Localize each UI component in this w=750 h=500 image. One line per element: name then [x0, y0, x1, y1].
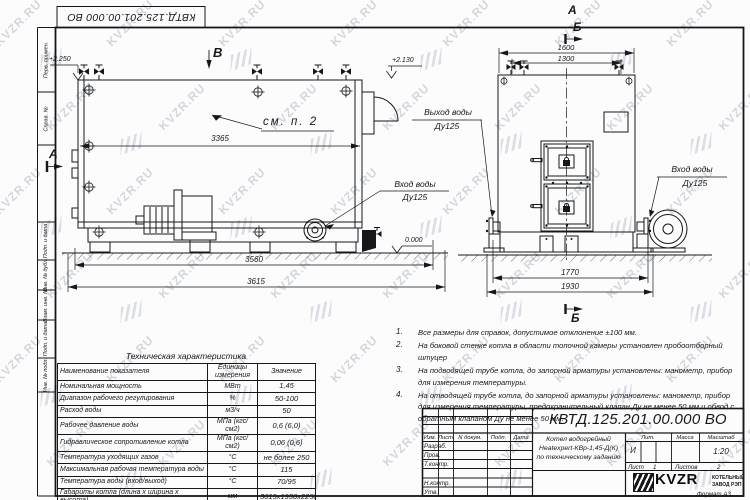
- spec-cell: Габариты котла (длина х ширина х высота): [58, 489, 208, 500]
- margin-box-inv-podl: Инв. № подл.: [37, 358, 55, 392]
- spec-cell: 1,45: [258, 381, 316, 393]
- section-a-label: А: [49, 148, 58, 161]
- spec-cell: 50: [258, 405, 316, 417]
- spec-cell: Номинальная мощность: [58, 381, 208, 393]
- spec-col-units: Единицы измерения: [208, 364, 258, 381]
- spec-cell: °С: [208, 464, 258, 476]
- spec-cell: Максимальная рабочая температура воды: [58, 464, 208, 476]
- tb-row-prov: Пров.: [424, 452, 440, 459]
- level-2250-label: +2.250: [49, 56, 71, 64]
- doc-number-inverted: КВТД.125.201.00.000 ВО: [67, 11, 196, 23]
- spec-row: Температура воды (вход/выход)°С70/95: [58, 476, 316, 488]
- dim-1300-label: 1300: [546, 55, 586, 63]
- dim-3365-label: 3365: [198, 135, 242, 144]
- water-outlet-dn: Ду125: [424, 122, 470, 132]
- spec-cell: 50-100: [258, 393, 316, 405]
- note-number: 2.: [396, 340, 418, 363]
- spec-row: Рабочее давление водыМПа (кгс/см2)0,6 (6…: [58, 417, 316, 434]
- spec-cell: Температура воды (вход/выход): [58, 476, 208, 488]
- note-text: На подводящей трубе котла, до запорной а…: [418, 365, 742, 388]
- spec-header-row: Наименование показателя Единицы измерени…: [58, 364, 316, 381]
- level-2130-label: +2.130: [392, 57, 414, 65]
- water-inlet-front-dn: Ду125: [672, 179, 718, 189]
- dim-1930-label: 1930: [550, 283, 590, 292]
- see-note-label: см. п. 2: [263, 116, 318, 129]
- kvzr-logo-text: KVZR: [655, 471, 698, 488]
- spec-cell: 70/95: [258, 476, 316, 488]
- margin-box-podp-data-1: Подп. и дата: [37, 222, 55, 260]
- note-number: 1.: [396, 327, 418, 338]
- spec-cell: м3/ч: [208, 405, 258, 417]
- spec-row: Габариты котла (длина х ширина х высота)…: [58, 489, 316, 500]
- dim-3560-label: 3560: [232, 256, 276, 265]
- spec-cell: Гидравлическое сопротивление котла: [58, 435, 208, 452]
- spec-col-name: Наименование показателя: [58, 364, 208, 381]
- note-text: На боковой стенке котла в области топочн…: [418, 340, 742, 363]
- tb-sheets-label: Листов: [675, 464, 698, 471]
- margin-box-vzam-inv: Взам. инв. №: [37, 290, 55, 320]
- format-label: Формат А3: [697, 491, 731, 498]
- margin-label: Взам. инв. №: [43, 288, 49, 322]
- dim-1770-label: 1770: [550, 269, 590, 278]
- tb-scale-header: Масштаб: [699, 435, 743, 441]
- water-inlet-front-label: Вход воды: [659, 165, 725, 175]
- margin-label: Справ. №: [43, 106, 49, 131]
- tb-product-line3: по техническому заданию: [533, 454, 624, 461]
- tb-lit-header: Лит.: [625, 435, 671, 441]
- tb-row-tkontr: Т.контр.: [424, 461, 449, 468]
- spec-cell: 3615х1930х2250: [258, 489, 316, 500]
- spec-cell: %: [208, 393, 258, 405]
- spec-cell: Рабочее давление воды: [58, 417, 208, 434]
- margin-label: Подп. и дата: [43, 322, 49, 356]
- view-b-label: В: [213, 46, 222, 61]
- tb-col-data: Дата: [510, 435, 532, 441]
- section-b-top-label: Б: [573, 21, 582, 34]
- spec-cell: Температура уходящих газов: [58, 452, 208, 464]
- company-name-line1: КОТЕЛЬНЫЙ: [712, 475, 745, 481]
- tb-sheet-value: 1: [653, 464, 656, 471]
- note-3: 3.На подводящей трубе котла, до запорной…: [396, 365, 742, 388]
- tb-product-line2: Heatexpert-КВр-1,45-Д(К): [533, 445, 624, 452]
- spec-row: Гидравлическое сопротивление котлаМПа (к…: [58, 435, 316, 452]
- margin-box-sprav-n: Справ. №: [37, 92, 55, 145]
- spec-row: Номинальная мощностьМВт1,45: [58, 381, 316, 393]
- tb-row-nkontr: Н.контр.: [424, 480, 450, 487]
- company-name-line2: ЗАВОД РЭП: [712, 482, 742, 488]
- title-block-doc-number: КВТД.125.201.00.000 ВО: [533, 411, 743, 428]
- tb-row-utv: Утв.: [424, 489, 438, 496]
- spec-cell: 115: [258, 464, 316, 476]
- dim-3615-label: 3615: [234, 278, 278, 287]
- tb-mass-header: Масса: [671, 435, 699, 441]
- spec-cell: 0,6 (6,0): [258, 417, 316, 434]
- tb-col-izm: Изм.: [422, 435, 438, 441]
- spec-cell: 0,06 (0,6): [258, 435, 316, 452]
- note-1: 1.Все размеры для справок, допустимое от…: [396, 327, 742, 338]
- spec-col-value: Значение: [258, 364, 316, 381]
- tb-sheet-label: Лист: [628, 464, 644, 471]
- tb-col-podp: Подп.: [487, 435, 510, 441]
- note-text: Все размеры для справок, допустимое откл…: [418, 327, 742, 338]
- tb-sheets-value: 2: [717, 464, 720, 471]
- section-b-bottom-label: Б: [571, 312, 580, 325]
- engineering-drawing-sheet: KVZR.RUKVZR.RUKVZR.RUKVZR.RUKVZR.RUKVZR.…: [0, 0, 750, 500]
- margin-box-inv-dubl: Инв. № дубл.: [37, 260, 55, 290]
- spec-row: Максимальная рабочая температура воды°С1…: [58, 464, 316, 476]
- tb-product-line1: Котел водогрейный: [533, 436, 624, 443]
- margin-label: Инв. № дубл.: [43, 258, 49, 292]
- margin-label: Подп. и дата: [43, 224, 49, 258]
- spec-table-title: Техническая характеристика: [57, 351, 315, 363]
- tb-col-list: Лист: [438, 435, 453, 441]
- margin-label: Инв. № подл.: [43, 358, 49, 392]
- spec-cell: Расход воды: [58, 405, 208, 417]
- spec-row: Расход водым3/ч50: [58, 405, 316, 417]
- note-number: 4.: [396, 390, 418, 424]
- tb-col-ndokum: N докум.: [453, 435, 487, 441]
- note-2: 2.На боковой стенке котла в области топо…: [396, 340, 742, 363]
- margin-box-podp-data-2: Подп. и дата: [37, 320, 55, 358]
- tb-lit-value: И: [625, 446, 641, 455]
- water-outlet-label: Выход воды: [413, 108, 483, 118]
- spec-row: Диапазон рабочего регулирования%50-100: [58, 393, 316, 405]
- level-zero-label: 0.000: [405, 237, 423, 245]
- spec-cell: МПа (кгс/см2): [208, 417, 258, 434]
- water-inlet-side-label: Вход воды: [382, 180, 448, 190]
- tb-row-razrab: Разраб.: [424, 443, 446, 450]
- spec-cell: °С: [208, 452, 258, 464]
- spec-row: Температура уходящих газов°Сне более 250: [58, 452, 316, 464]
- spec-cell: Диапазон рабочего регулирования: [58, 393, 208, 405]
- spec-cell: мм: [208, 489, 258, 500]
- tb-scale-value: 1:20: [699, 447, 743, 456]
- kvzr-logo-flag-icon: [633, 473, 654, 492]
- water-inlet-side-dn: Ду125: [392, 193, 438, 203]
- spec-cell: не более 250: [258, 452, 316, 464]
- spec-cell: МПа (кгс/см2): [208, 435, 258, 452]
- view-a-label: А: [568, 4, 577, 17]
- dim-1600-label: 1600: [546, 44, 586, 52]
- note-number: 3.: [396, 365, 418, 388]
- top-corner-doc-number-box: КВТД.125.201.00.000 ВО: [57, 6, 205, 27]
- spec-table: Техническая характеристика Наименование …: [57, 351, 315, 500]
- spec-cell: °С: [208, 476, 258, 488]
- spec-cell: МВт: [208, 381, 258, 393]
